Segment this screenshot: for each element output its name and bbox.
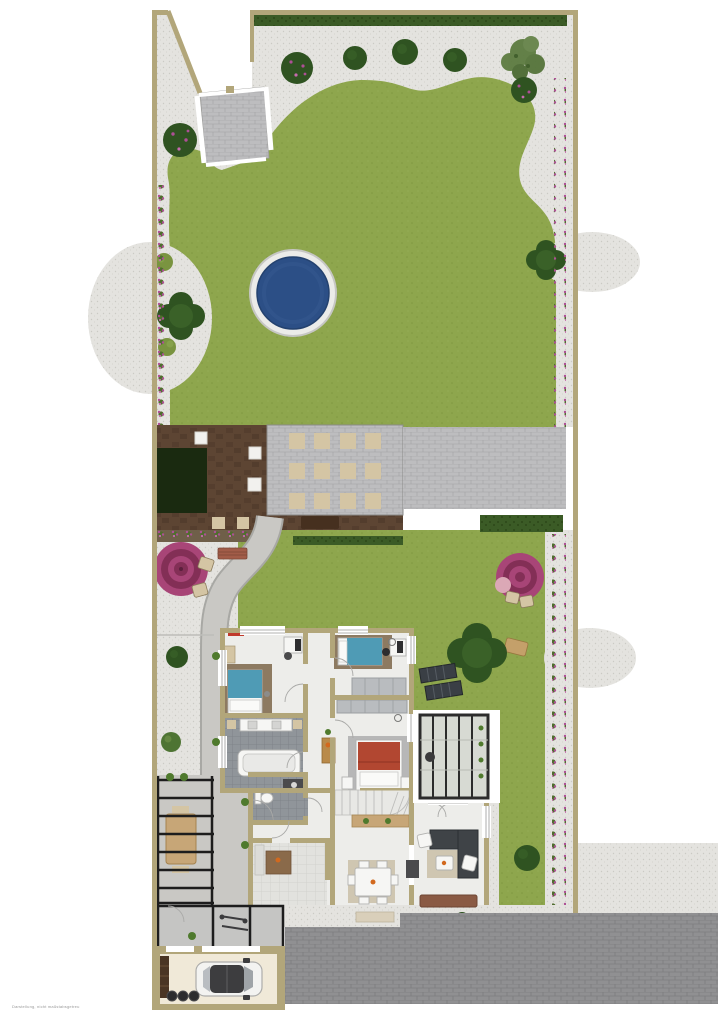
paved-terrace <box>403 427 566 509</box>
gravel-yard-right <box>545 843 718 913</box>
mirror <box>243 995 250 1000</box>
deck-stone <box>212 517 225 529</box>
lawn-east-mid <box>497 713 545 800</box>
garden-chair <box>505 591 520 604</box>
plant-icon <box>385 818 391 824</box>
corner-hedge <box>480 515 563 532</box>
deck-light <box>249 447 261 459</box>
toilet-bowl <box>261 793 273 803</box>
stepping-stone-patio <box>267 425 403 515</box>
pergola <box>157 773 214 906</box>
planting-bed <box>157 448 207 513</box>
garden-chair <box>519 595 534 608</box>
plant-icon <box>166 773 174 781</box>
plant-icon <box>241 841 249 849</box>
side-table <box>264 691 270 697</box>
flower-border-right <box>554 78 566 428</box>
toilet-tank <box>255 792 261 804</box>
sofa-chaise <box>458 830 478 878</box>
garage <box>152 946 285 1010</box>
wardrobe <box>337 700 407 713</box>
terrace-edge <box>566 427 574 512</box>
towel <box>293 720 302 729</box>
deck-stone <box>237 517 249 529</box>
parasol-right <box>496 553 544 601</box>
globe-tree-icon <box>343 46 367 70</box>
flower-border-east <box>552 534 566 910</box>
low-hedge <box>293 536 403 545</box>
shrub-icon <box>514 845 540 871</box>
terrace-steps <box>356 912 394 922</box>
flowering-shrub-icon <box>163 123 197 157</box>
side-table <box>406 860 419 878</box>
bike-storage <box>158 906 283 948</box>
garden-bench <box>218 548 247 559</box>
conservatory <box>413 710 500 803</box>
deck-bench <box>301 516 339 529</box>
plant-icon <box>241 798 249 806</box>
desk-chair <box>284 652 292 660</box>
site-plan-page: Darstellung, nicht maßstabsgetreu <box>0 0 724 1024</box>
towel <box>227 720 236 729</box>
bin-icon <box>178 991 188 1001</box>
plant-icon <box>363 818 369 824</box>
plant-icon <box>212 652 220 660</box>
bin-icon <box>189 991 199 1001</box>
globe-tree-icon <box>443 48 467 72</box>
flower-border-left <box>156 185 166 428</box>
shrub-icon <box>166 646 188 668</box>
plant-icon <box>212 738 220 746</box>
outdoor-bench <box>420 895 477 907</box>
shelf <box>160 956 169 998</box>
swimming-pool <box>250 250 336 336</box>
dining-room <box>348 860 398 904</box>
sofa <box>430 830 462 849</box>
fruit-bowl <box>276 858 281 863</box>
pink-chair <box>495 577 511 593</box>
sideboard <box>352 815 409 827</box>
deck-light <box>248 478 261 491</box>
flowering-shrub-icon <box>281 52 313 84</box>
counter <box>255 845 264 875</box>
armchair <box>461 855 477 872</box>
car <box>196 958 262 1000</box>
deck-light <box>195 432 207 444</box>
stove-icon <box>425 752 435 762</box>
chair <box>172 806 189 813</box>
plant-icon <box>325 729 331 735</box>
bin-icon <box>167 991 177 1001</box>
plant-icon <box>180 773 188 781</box>
armchair <box>417 833 432 848</box>
nightstand <box>342 777 353 789</box>
shrub-icon <box>161 732 181 752</box>
globe-tree-icon <box>392 39 418 65</box>
outdoor-table <box>166 814 196 864</box>
kitchen-island <box>266 851 291 874</box>
plant-icon <box>188 932 196 940</box>
garden-top <box>88 10 640 430</box>
mirror <box>243 958 250 963</box>
flowering-shrub-icon <box>511 77 537 103</box>
plan-disclaimer: Darstellung, nicht maßstabsgetreu <box>12 1004 80 1009</box>
site-plan-drawing <box>0 0 724 1024</box>
desk-chair <box>382 648 390 656</box>
nightstand <box>401 777 410 789</box>
